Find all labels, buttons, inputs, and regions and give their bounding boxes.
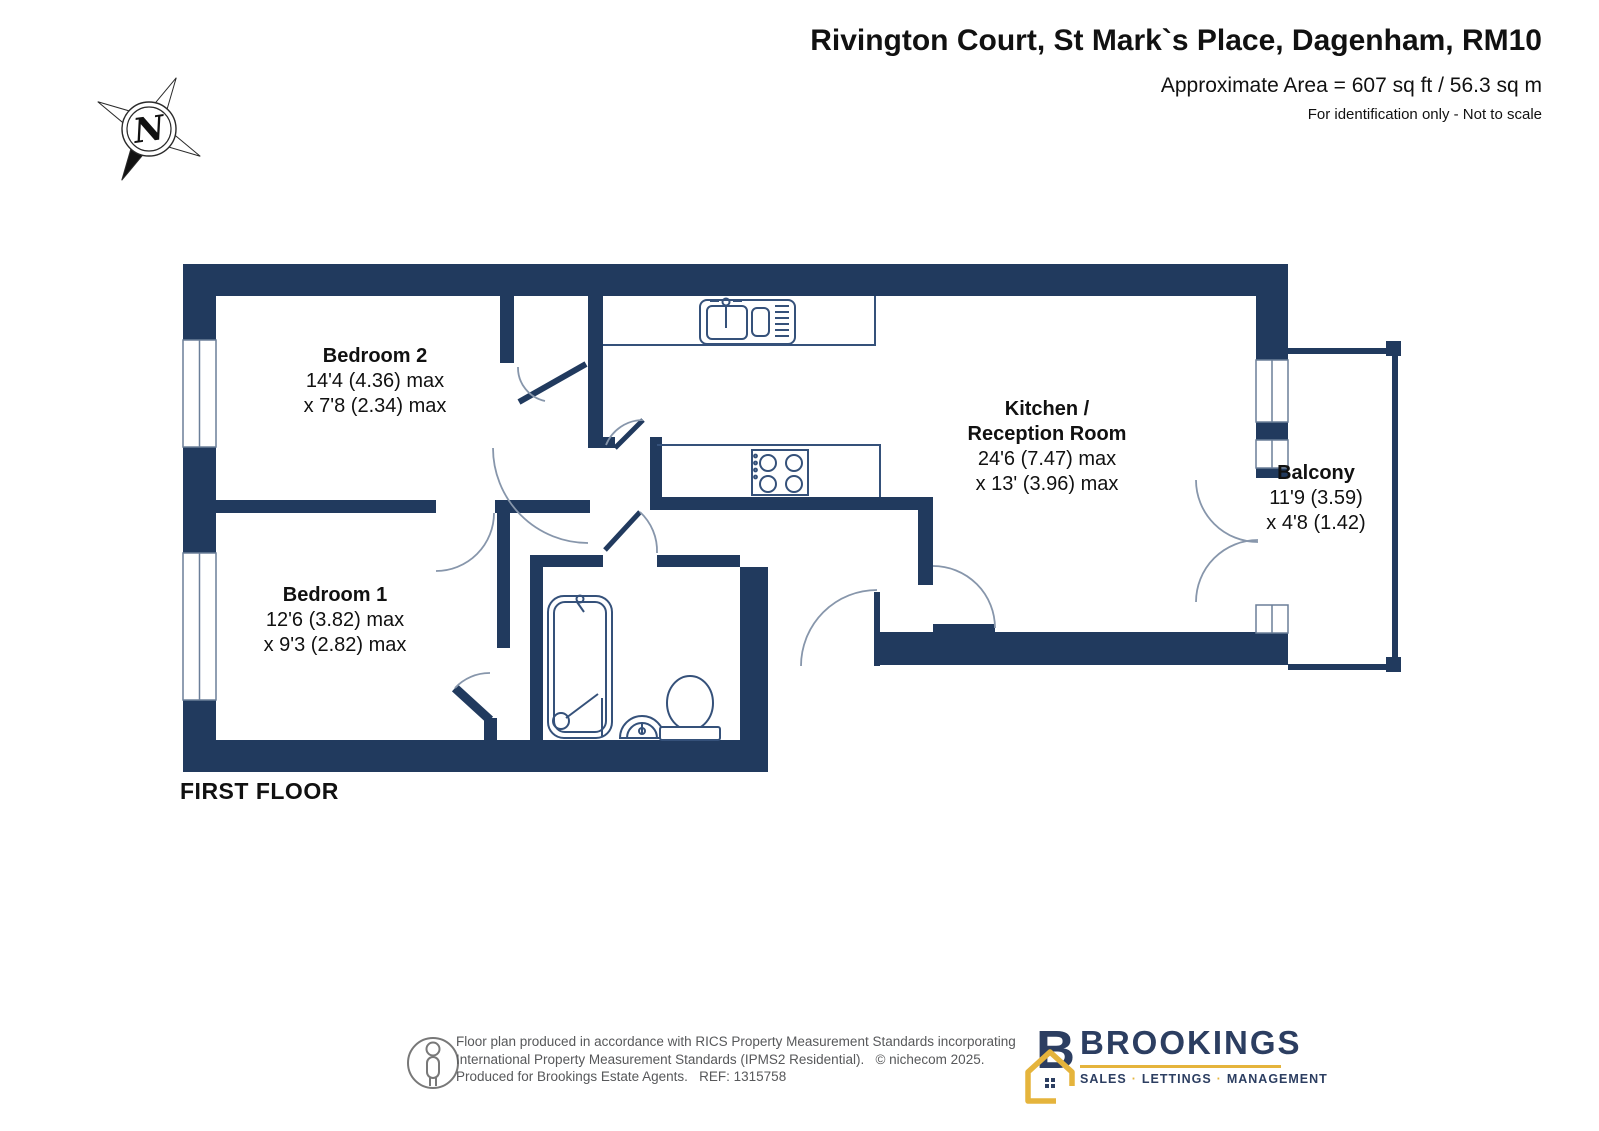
room-name: Reception Room (897, 422, 1197, 447)
door-arc (455, 673, 490, 688)
room-name: Balcony (1192, 461, 1440, 486)
room-label-kitchen-reception: Kitchen / Reception Room 24'6 (7.47) max… (897, 397, 1197, 497)
hob-icon (752, 450, 808, 495)
footer-line: International Property Measurement Stand… (456, 1051, 1031, 1069)
toilet-icon (660, 676, 720, 740)
room-name: Bedroom 2 (225, 344, 525, 369)
room-label-bedroom1: Bedroom 1 12'6 (3.82) max x 9'3 (2.82) m… (185, 583, 485, 658)
door-arc (1196, 540, 1258, 602)
room-label-balcony: Balcony 11'9 (3.59) x 4'8 (1.42) (1192, 461, 1440, 536)
basin-icon (620, 716, 664, 738)
door-leaf (605, 512, 640, 550)
bath-icon (548, 596, 612, 739)
window (1256, 360, 1288, 422)
brookings-logo: BROOKINGS SALES·LETTINGS·MANAGEMENT (1080, 1025, 1328, 1086)
tagline-management: MANAGEMENT (1227, 1072, 1328, 1086)
room-dim: x 13' (3.96) max (897, 472, 1197, 497)
room-dim: 12'6 (3.82) max (185, 608, 485, 633)
door-arc (933, 566, 995, 628)
tagline-dot: · (1127, 1072, 1142, 1086)
floor-label: FIRST FLOOR (180, 778, 339, 805)
tagline-dot: · (1212, 1072, 1227, 1086)
room-dim: x 4'8 (1.42) (1192, 511, 1440, 536)
footer-disclaimer: Floor plan produced in accordance with R… (456, 1033, 1031, 1086)
tagline-sales: SALES (1080, 1072, 1127, 1086)
footer-line: Floor plan produced in accordance with R… (456, 1033, 1031, 1051)
disclaimer-note: For identification only - Not to scale (1308, 106, 1542, 123)
page-title: Rivington Court, St Mark`s Place, Dagenh… (810, 24, 1542, 58)
sink-icon (700, 299, 795, 345)
room-name: Bedroom 1 (185, 583, 485, 608)
floor-plan (0, 0, 1599, 1131)
room-dim: 11'9 (3.59) (1192, 486, 1440, 511)
door-leaf (933, 624, 995, 632)
brand-gold-rule (1080, 1065, 1281, 1068)
brand-tagline: SALES·LETTINGS·MANAGEMENT (1080, 1072, 1328, 1086)
room-dim: 24'6 (7.47) max (897, 447, 1197, 472)
compass-icon: N (88, 68, 210, 190)
window (183, 340, 216, 447)
door-arc (640, 512, 657, 553)
room-dim: x 7'8 (2.34) max (225, 394, 525, 419)
bathroom-fixtures (548, 596, 720, 741)
door-arc (801, 590, 877, 666)
door-arc (436, 513, 494, 571)
room-dim: x 9'3 (2.82) max (185, 633, 485, 658)
kitchen-fixtures (603, 296, 880, 497)
room-name: Kitchen / (897, 397, 1197, 422)
room-dim: 14'4 (4.36) max (225, 369, 525, 394)
door-leaf (519, 364, 586, 402)
brookings-house-icon: B (1020, 1022, 1078, 1106)
approx-area: Approximate Area = 607 sq ft / 56.3 sq m (1161, 74, 1542, 98)
tagline-lettings: LETTINGS (1142, 1072, 1212, 1086)
door-leaf (455, 688, 490, 720)
footer-line: Produced for Brookings Estate Agents. RE… (456, 1068, 1031, 1086)
room-label-bedroom2: Bedroom 2 14'4 (4.36) max x 7'8 (2.34) m… (225, 344, 525, 419)
window (1256, 605, 1288, 633)
brand-name: BROOKINGS (1080, 1025, 1328, 1061)
door-leaf (615, 420, 643, 448)
person-icon (406, 1030, 460, 1096)
